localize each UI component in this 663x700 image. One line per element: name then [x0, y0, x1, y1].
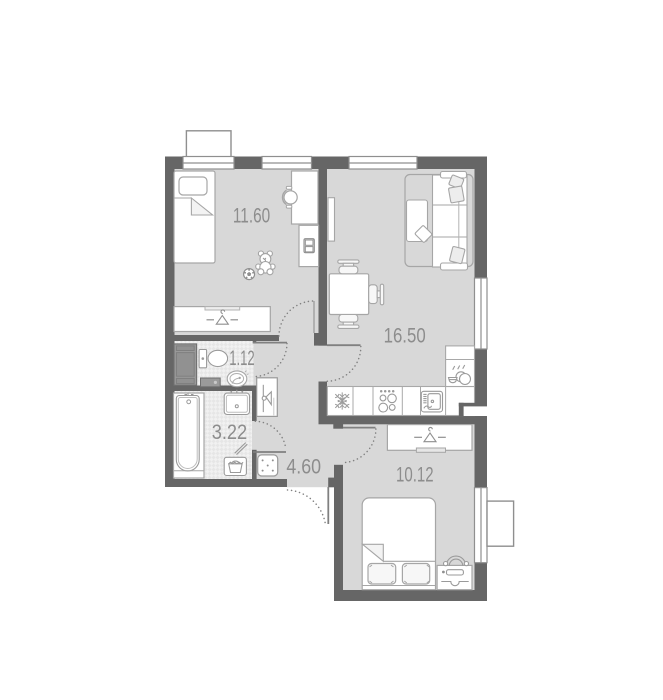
svg-text:10.12: 10.12	[396, 464, 434, 487]
svg-text:4.60: 4.60	[286, 455, 321, 478]
svg-text:3.22: 3.22	[212, 421, 248, 444]
svg-text:1.12: 1.12	[229, 347, 255, 370]
svg-text:16.50: 16.50	[384, 325, 426, 348]
svg-text:11.60: 11.60	[233, 205, 270, 228]
